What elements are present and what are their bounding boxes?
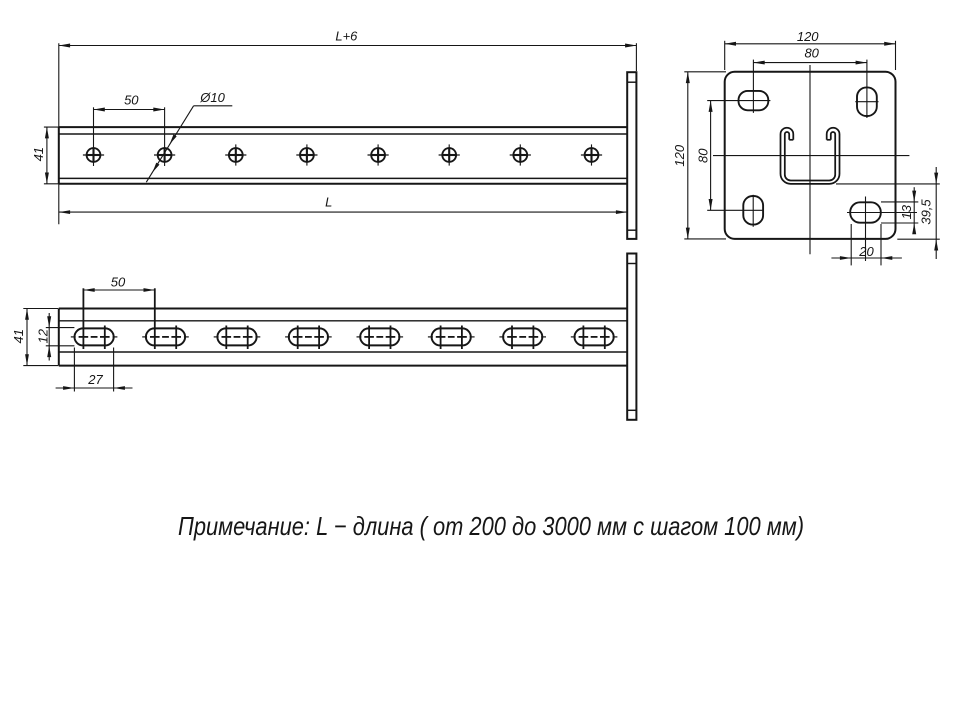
svg-text:27: 27 bbox=[87, 372, 103, 387]
svg-text:12: 12 bbox=[35, 328, 50, 343]
svg-text:Ø10: Ø10 bbox=[199, 90, 225, 105]
svg-text:L+6: L+6 bbox=[335, 28, 358, 43]
svg-text:L: L bbox=[325, 195, 332, 210]
svg-text:80: 80 bbox=[804, 46, 819, 61]
svg-text:120: 120 bbox=[797, 29, 819, 44]
svg-text:41: 41 bbox=[31, 147, 46, 161]
svg-text:41: 41 bbox=[11, 329, 26, 343]
svg-text:120: 120 bbox=[672, 144, 687, 166]
svg-text:80: 80 bbox=[696, 148, 711, 163]
svg-text:Примечание: L − длина ( от 200: Примечание: L − длина ( от 200 до 3000 м… bbox=[178, 511, 804, 541]
svg-text:50: 50 bbox=[124, 93, 139, 108]
svg-text:20: 20 bbox=[858, 244, 874, 259]
svg-text:50: 50 bbox=[111, 274, 126, 289]
svg-text:13: 13 bbox=[899, 204, 914, 219]
svg-text:39,5: 39,5 bbox=[918, 199, 933, 225]
